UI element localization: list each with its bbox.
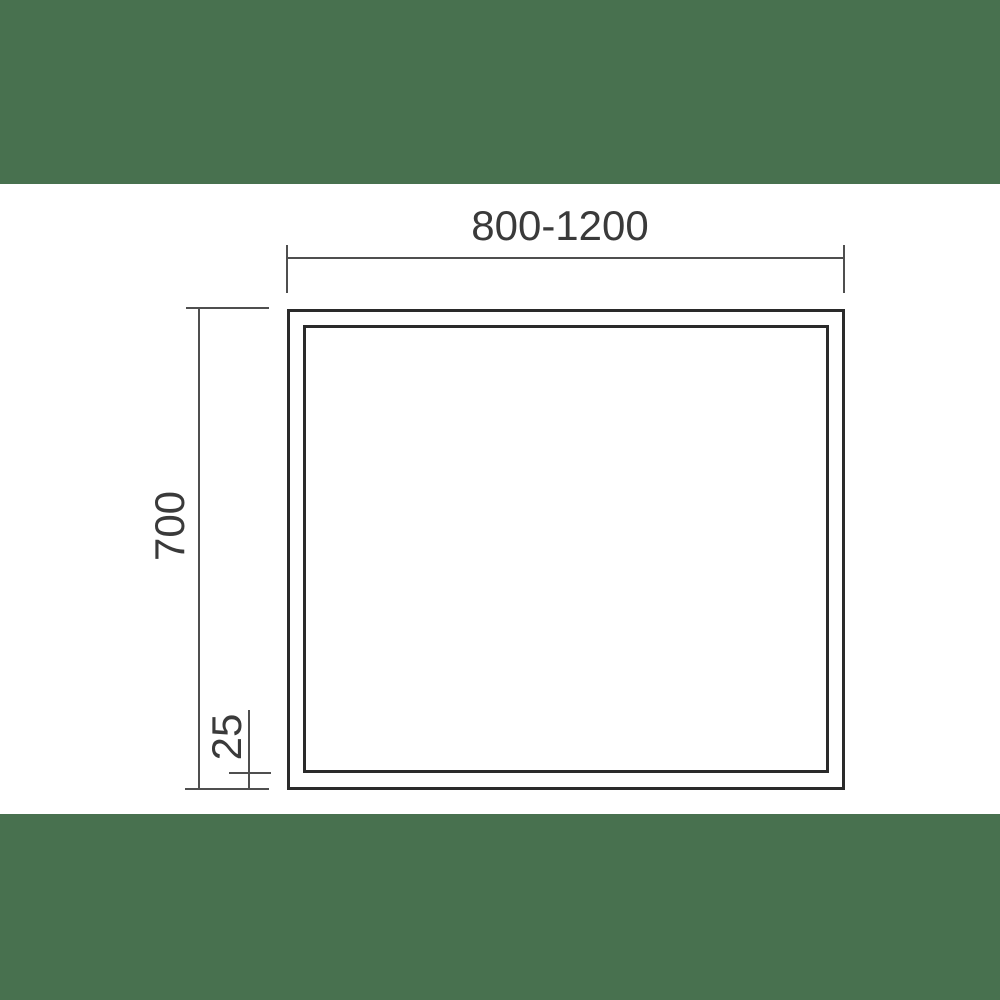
top-green-band bbox=[0, 0, 1000, 184]
width-dimension-label: 800-1200 bbox=[471, 205, 649, 247]
height-dimension-line bbox=[198, 308, 200, 790]
width-dimension-tick-left bbox=[286, 245, 288, 293]
panel-inner-outline bbox=[303, 325, 829, 773]
width-dimension-line bbox=[287, 257, 845, 259]
bottom-green-band bbox=[0, 814, 1000, 1000]
width-dimension-tick-right bbox=[843, 245, 845, 293]
thickness-dimension-tick bbox=[229, 772, 271, 774]
thickness-dimension-label: 25 bbox=[206, 714, 248, 761]
drawing-canvas: 800-1200 700 25 bbox=[0, 0, 1000, 1000]
height-dimension-tick-bottom bbox=[185, 788, 269, 790]
height-dimension-label: 700 bbox=[149, 491, 191, 561]
height-dimension-tick-top bbox=[186, 307, 269, 309]
